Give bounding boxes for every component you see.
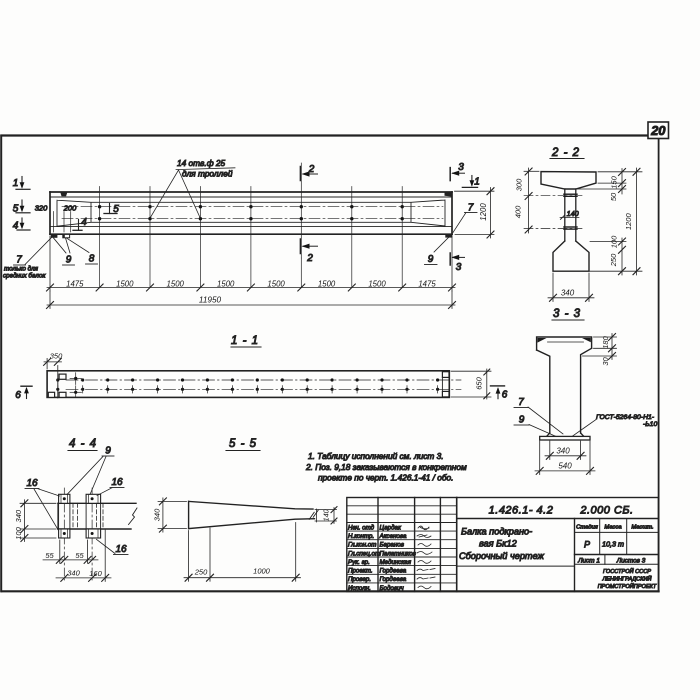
svg-text:Масшт.: Масшт. [631, 525, 653, 531]
svg-text:250: 250 [194, 568, 208, 577]
svg-text:400: 400 [513, 205, 522, 218]
svg-text:10,3 т: 10,3 т [602, 540, 624, 549]
svg-text:250: 250 [609, 253, 618, 267]
svg-text:1500: 1500 [368, 279, 386, 288]
svg-text:3: 3 [458, 162, 464, 173]
svg-text:Стадия: Стадия [576, 525, 598, 531]
svg-text:16: 16 [111, 477, 123, 488]
svg-text:Балка подкрано-: Балка подкрано- [461, 527, 532, 537]
svg-text:150: 150 [610, 175, 619, 188]
svg-text:650: 650 [475, 376, 484, 389]
svg-text:140: 140 [322, 509, 331, 521]
svg-text:11950: 11950 [199, 296, 222, 305]
svg-text:5: 5 [13, 204, 19, 215]
svg-text:55: 55 [75, 551, 84, 560]
svg-text:4: 4 [13, 221, 19, 232]
svg-text:Гордеева: Гордеева [380, 568, 407, 575]
svg-text:1 - 1: 1 - 1 [231, 335, 259, 347]
svg-text:Гордеева: Гордеева [380, 576, 407, 583]
svg-text:9: 9 [428, 254, 434, 265]
svg-text:1500: 1500 [217, 279, 235, 288]
svg-text:Гл.кон.от: Гл.кон.от [348, 542, 376, 549]
svg-text:350: 350 [50, 352, 63, 361]
svg-text:160: 160 [89, 569, 102, 578]
svg-text:2 - 2: 2 - 2 [551, 147, 580, 159]
svg-text:Бодович: Бодович [380, 585, 405, 592]
svg-text:100: 100 [610, 235, 619, 248]
svg-text:340: 340 [556, 447, 570, 456]
svg-text:ПРОМСТРОЙПРОЕКТ: ПРОМСТРОЙПРОЕКТ [598, 582, 657, 590]
svg-text:3: 3 [456, 262, 462, 273]
svg-text:Цардак: Цардак [380, 525, 402, 532]
svg-text:1: 1 [13, 178, 19, 189]
svg-text:Баранов: Баранов [380, 542, 405, 549]
svg-text:14 отв.ф 25: 14 отв.ф 25 [177, 158, 226, 168]
svg-text:Нач. отд: Нач. отд [348, 525, 375, 532]
svg-text:ЛЕНИНГРАДСКИЙ: ЛЕНИНГРАДСКИЙ [601, 575, 651, 583]
svg-text:140: 140 [567, 209, 579, 218]
svg-text:Гл.спец.от: Гл.спец.от [348, 550, 380, 557]
svg-text:1200: 1200 [624, 213, 633, 231]
svg-text:Проект.: Проект. [348, 568, 373, 575]
svg-text:-Ь10: -Ь10 [643, 421, 657, 428]
svg-text:1.426.1- 4.2: 1.426.1- 4.2 [489, 505, 554, 517]
svg-text:проекте по черт. 1.426.1-41 /: проекте по черт. 1.426.1-41 / обо. [318, 473, 453, 483]
svg-text:5: 5 [113, 204, 119, 215]
svg-text:7: 7 [518, 397, 524, 408]
svg-text:9: 9 [66, 255, 72, 266]
svg-text:9: 9 [105, 446, 111, 457]
svg-text:Провер.: Провер. [348, 576, 371, 583]
svg-text:только для: только для [4, 265, 39, 273]
svg-text:для троллей: для троллей [182, 169, 233, 179]
svg-text:50: 50 [609, 192, 618, 201]
svg-text:6: 6 [502, 390, 508, 401]
svg-text:2.000 СБ.: 2.000 СБ. [579, 505, 633, 517]
svg-text:Палатников: Палатников [380, 550, 417, 557]
svg-text:ГОСТ-5264-80-Н1-: ГОСТ-5264-80-Н1- [596, 414, 655, 421]
svg-text:Н.контр.: Н.контр. [348, 533, 374, 540]
svg-text:ГОССТРОЙ СССР: ГОССТРОЙ СССР [603, 567, 651, 575]
svg-text:300: 300 [515, 178, 524, 191]
svg-text:1475: 1475 [66, 279, 84, 288]
svg-text:2: 2 [308, 164, 315, 175]
svg-text:средних балок: средних балок [3, 272, 46, 280]
svg-text:1500: 1500 [116, 279, 134, 288]
svg-text:Рук. гр.: Рук. гр. [348, 559, 370, 566]
svg-text:Сборочный чертеж: Сборочный чертеж [459, 551, 545, 561]
svg-text:3 - 3: 3 - 3 [553, 308, 581, 320]
svg-text:1475: 1475 [418, 279, 436, 288]
svg-text:4 - 4: 4 - 4 [69, 438, 97, 450]
svg-text:55: 55 [45, 551, 54, 560]
svg-text:Р: Р [584, 540, 590, 550]
svg-text:200: 200 [63, 204, 77, 213]
svg-text:1500: 1500 [318, 279, 336, 288]
svg-text:Мединская: Мединская [380, 559, 412, 566]
svg-text:1000: 1000 [253, 566, 271, 575]
svg-text:8: 8 [89, 254, 95, 265]
svg-text:Исполн.: Исполн. [348, 585, 371, 592]
svg-text:1500: 1500 [267, 279, 285, 288]
svg-text:2. Поз. 9,18 заказываются в ко: 2. Поз. 9,18 заказываются в конкретном [305, 462, 467, 472]
svg-text:1200: 1200 [479, 203, 488, 221]
svg-text:6: 6 [15, 390, 21, 401]
svg-text:20: 20 [650, 123, 666, 138]
svg-text:9: 9 [519, 415, 525, 426]
svg-text:340: 340 [14, 509, 23, 522]
svg-text:Масса: Масса [604, 525, 622, 531]
svg-text:7: 7 [468, 203, 474, 214]
svg-text:5 - 5: 5 - 5 [229, 438, 257, 450]
svg-text:4: 4 [81, 217, 87, 228]
svg-text:180: 180 [601, 335, 610, 348]
svg-text:1: 1 [474, 177, 480, 188]
svg-text:340: 340 [153, 508, 162, 521]
svg-text:100: 100 [14, 526, 23, 539]
svg-text:30: 30 [601, 357, 610, 366]
svg-text:320: 320 [35, 204, 48, 213]
svg-text:7: 7 [16, 255, 22, 266]
svg-text:340: 340 [561, 289, 575, 298]
svg-text:540: 540 [558, 462, 572, 471]
svg-text:340: 340 [67, 568, 80, 577]
svg-text:1500: 1500 [167, 279, 185, 288]
svg-text:Аксенова: Аксенова [379, 533, 407, 540]
svg-text:2: 2 [306, 253, 313, 264]
svg-text:16: 16 [115, 544, 127, 555]
svg-text:вая Бк12: вая Бк12 [479, 539, 517, 549]
svg-text:Листов 3: Листов 3 [616, 558, 646, 565]
svg-text:1. Таблицу исполнений см. лис: 1. Таблицу исполнений см. лист 3. [308, 451, 444, 461]
svg-text:Лист 1: Лист 1 [577, 558, 600, 565]
svg-text:16: 16 [26, 478, 38, 489]
